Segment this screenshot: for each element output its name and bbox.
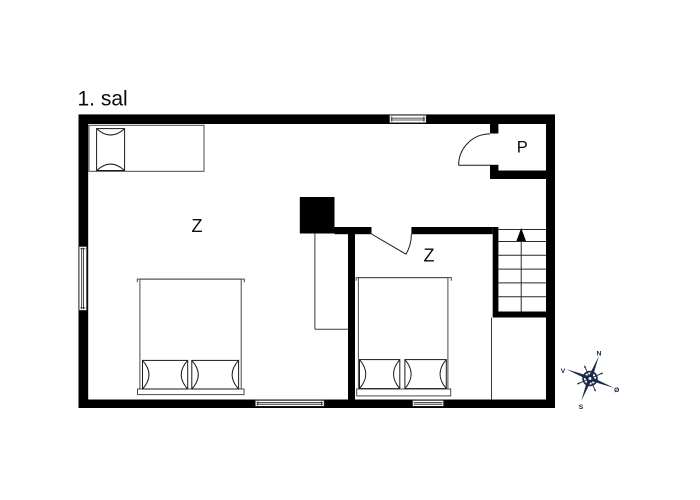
svg-text:P: P <box>517 139 528 157</box>
svg-text:Z: Z <box>424 246 435 266</box>
svg-text:Ø: Ø <box>614 387 619 394</box>
svg-text:1. sal: 1. sal <box>78 88 128 111</box>
svg-text:S: S <box>579 404 584 411</box>
svg-text:N: N <box>597 351 602 358</box>
svg-text:Z: Z <box>192 216 203 236</box>
svg-text:V: V <box>561 368 566 375</box>
